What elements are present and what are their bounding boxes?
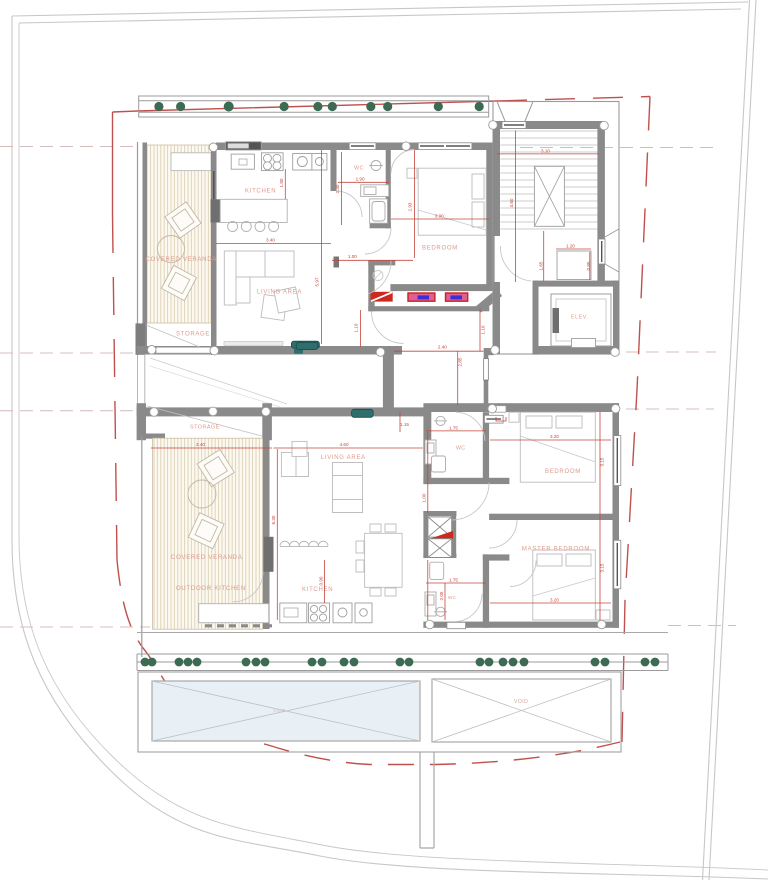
- svg-text:LIVING AREA: LIVING AREA: [257, 290, 302, 296]
- svg-text:3.10: 3.10: [541, 148, 550, 153]
- svg-text:1.15: 1.15: [400, 422, 409, 427]
- svg-text:BEDROOM: BEDROOM: [422, 246, 458, 252]
- svg-text:1.80: 1.80: [279, 178, 284, 187]
- svg-text:1.75: 1.75: [449, 578, 458, 583]
- svg-text:OUTDOOR KITCHEN: OUTDOOR KITCHEN: [176, 586, 246, 592]
- svg-text:VOID: VOID: [514, 699, 528, 705]
- svg-text:3.40: 3.40: [266, 238, 275, 243]
- svg-text:3.40: 3.40: [196, 442, 205, 447]
- svg-text:2.40: 2.40: [438, 345, 447, 350]
- svg-text:STORAGE: STORAGE: [190, 425, 220, 431]
- svg-text:BEDROOM: BEDROOM: [545, 469, 581, 475]
- svg-text:3.15: 3.15: [600, 563, 605, 572]
- svg-text:2.05: 2.05: [439, 591, 444, 600]
- svg-text:STORAGE: STORAGE: [176, 332, 210, 338]
- svg-text:3.20: 3.20: [550, 434, 559, 439]
- svg-text:0.90: 0.90: [318, 576, 323, 585]
- svg-text:2.93: 2.93: [408, 202, 413, 211]
- svg-text:3.00: 3.00: [435, 214, 444, 219]
- svg-text:1.10: 1.10: [354, 323, 359, 332]
- svg-text:WC: WC: [448, 595, 457, 600]
- svg-text:WC: WC: [354, 166, 364, 172]
- svg-text:WC: WC: [456, 446, 465, 452]
- svg-text:1.00: 1.00: [348, 254, 357, 259]
- svg-text:6.30: 6.30: [271, 515, 276, 524]
- svg-text:1.00: 1.00: [422, 493, 427, 502]
- svg-text:5.97: 5.97: [315, 277, 320, 286]
- svg-text:4.60: 4.60: [509, 198, 514, 207]
- svg-text:2.30: 2.30: [335, 184, 340, 193]
- svg-text:1.65: 1.65: [539, 261, 544, 270]
- svg-text:KITCHEN: KITCHEN: [302, 587, 333, 593]
- svg-text:3.15: 3.15: [600, 457, 605, 466]
- svg-text:1.90: 1.90: [356, 177, 365, 182]
- svg-text:1.10: 1.10: [481, 325, 486, 334]
- svg-text:0.85: 0.85: [586, 261, 591, 270]
- svg-text:ELEV.: ELEV.: [571, 315, 588, 321]
- svg-text:COVERED VERANDA: COVERED VERANDA: [146, 257, 218, 263]
- svg-text:MASTER BEDROOM: MASTER BEDROOM: [522, 546, 590, 552]
- svg-text:2.85: 2.85: [458, 357, 463, 366]
- svg-text:4.60: 4.60: [340, 442, 349, 447]
- svg-text:1.20: 1.20: [566, 244, 575, 249]
- svg-text:COVERED VERANDA: COVERED VERANDA: [171, 555, 243, 561]
- svg-text:3.20: 3.20: [550, 598, 559, 603]
- svg-text:LIVING AREA: LIVING AREA: [321, 455, 366, 461]
- svg-text:KITCHEN: KITCHEN: [245, 189, 276, 195]
- svg-text:1.75: 1.75: [449, 425, 458, 430]
- svg-text:VOID: VOID: [273, 708, 286, 713]
